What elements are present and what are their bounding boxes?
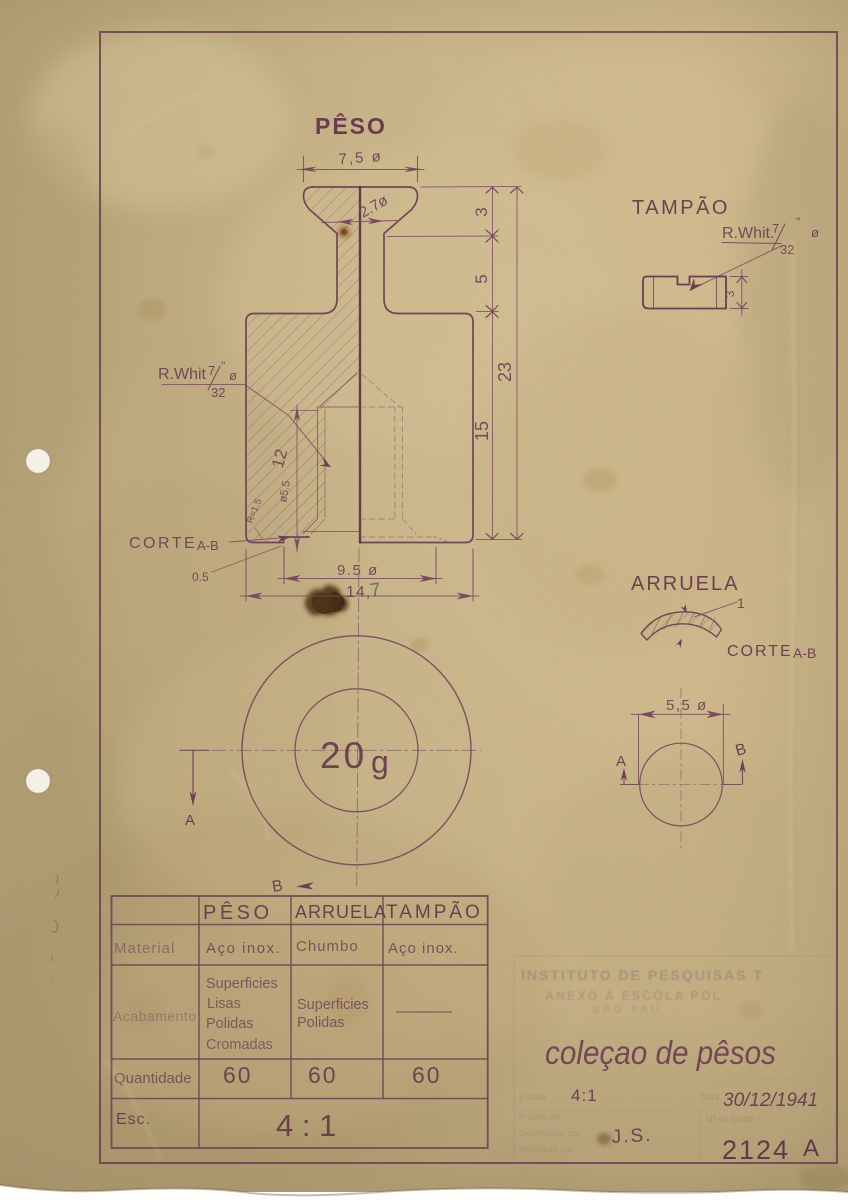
svg-text:Quantidade: Quantidade bbox=[114, 1070, 192, 1087]
svg-text:ARRUELA: ARRUELA bbox=[631, 573, 739, 595]
svg-text:20: 20 bbox=[320, 735, 367, 776]
svg-text:Data: Data bbox=[700, 1092, 719, 1102]
svg-text:Acabamento: Acabamento bbox=[113, 1008, 197, 1024]
svg-text:Desenhado por: Desenhado por bbox=[519, 1128, 581, 1138]
svg-text:60: 60 bbox=[223, 1062, 253, 1088]
svg-text:PÊSO: PÊSO bbox=[203, 901, 273, 924]
svg-text:TAMPÃO: TAMPÃO bbox=[386, 901, 483, 923]
svg-text:2124: 2124 bbox=[722, 1135, 790, 1165]
svg-text:A-B: A-B bbox=[793, 645, 816, 661]
svg-text:coleçao de pêsos: coleçao de pêsos bbox=[545, 1034, 776, 1071]
svg-text:60: 60 bbox=[412, 1062, 442, 1088]
svg-text:ANEXO À ESCOLA POL: ANEXO À ESCOLA POL bbox=[545, 988, 722, 1003]
svg-text:5: 5 bbox=[472, 274, 491, 283]
svg-text:3: 3 bbox=[723, 290, 737, 297]
svg-text:15: 15 bbox=[472, 421, 492, 441]
svg-text:Aço inox.: Aço inox. bbox=[206, 940, 281, 957]
svg-text:0.5: 0.5 bbox=[192, 570, 209, 584]
svg-text:INSTITUTO DE PESQUISAS T: INSTITUTO DE PESQUISAS T bbox=[521, 967, 764, 983]
svg-text:A: A bbox=[185, 812, 195, 829]
svg-text:A: A bbox=[616, 753, 626, 770]
svg-text:Projeto de: Projeto de bbox=[519, 1112, 560, 1122]
svg-text:Cromadas: Cromadas bbox=[206, 1037, 273, 1053]
svg-text:Chumbo: Chumbo bbox=[296, 938, 359, 955]
svg-text:g: g bbox=[371, 744, 389, 780]
svg-text:J.S.: J.S. bbox=[611, 1125, 653, 1148]
svg-text:CORTE: CORTE bbox=[727, 643, 793, 660]
svg-text:Escala: Escala bbox=[519, 1092, 546, 1102]
svg-text:A-B: A-B bbox=[197, 538, 219, 553]
svg-text:CORTE: CORTE bbox=[129, 535, 197, 552]
svg-text:ø: ø bbox=[229, 368, 237, 383]
svg-text:Aprovado por: Aprovado por bbox=[519, 1144, 573, 1154]
svg-text:Polidas: Polidas bbox=[206, 1016, 254, 1032]
svg-text:A: A bbox=[803, 1135, 819, 1162]
svg-text:Aço inox.: Aço inox. bbox=[388, 940, 459, 957]
svg-text:7: 7 bbox=[772, 221, 779, 236]
svg-text:7: 7 bbox=[208, 363, 215, 378]
svg-text:7,5 ø: 7,5 ø bbox=[338, 148, 383, 168]
svg-text:SÃO PAU: SÃO PAU bbox=[592, 1003, 662, 1016]
svg-text:30/12/1941: 30/12/1941 bbox=[723, 1090, 818, 1111]
svg-text:ARRUELA: ARRUELA bbox=[295, 902, 387, 922]
svg-text:9.5 ø: 9.5 ø bbox=[337, 562, 379, 579]
svg-text:Nº do fundo: Nº do fundo bbox=[706, 1114, 753, 1124]
svg-text:ø: ø bbox=[811, 225, 819, 240]
svg-text:Material: Material bbox=[114, 940, 175, 957]
svg-text:1: 1 bbox=[737, 595, 745, 611]
svg-text:": " bbox=[221, 359, 225, 373]
svg-text:Superficies: Superficies bbox=[297, 997, 369, 1013]
svg-text:PÊSO: PÊSO bbox=[315, 112, 387, 139]
svg-text:23: 23 bbox=[495, 362, 515, 382]
svg-text:4 : 1: 4 : 1 bbox=[276, 1108, 336, 1143]
svg-text:TAMPÃO: TAMPÃO bbox=[632, 195, 730, 219]
svg-text:Polidas: Polidas bbox=[297, 1015, 345, 1031]
svg-text:3: 3 bbox=[472, 207, 491, 216]
svg-text:Superficies: Superficies bbox=[206, 976, 278, 992]
svg-text:32: 32 bbox=[211, 385, 225, 400]
svg-text:4:1: 4:1 bbox=[571, 1086, 598, 1105]
svg-text:R.Whit: R.Whit bbox=[158, 366, 207, 383]
svg-text:": " bbox=[796, 215, 800, 229]
svg-text:R.Whit.: R.Whit. bbox=[722, 225, 774, 242]
svg-text:60: 60 bbox=[308, 1062, 338, 1088]
svg-text:5,5 ø: 5,5 ø bbox=[666, 697, 708, 714]
svg-text:Lisas: Lisas bbox=[207, 996, 241, 1012]
